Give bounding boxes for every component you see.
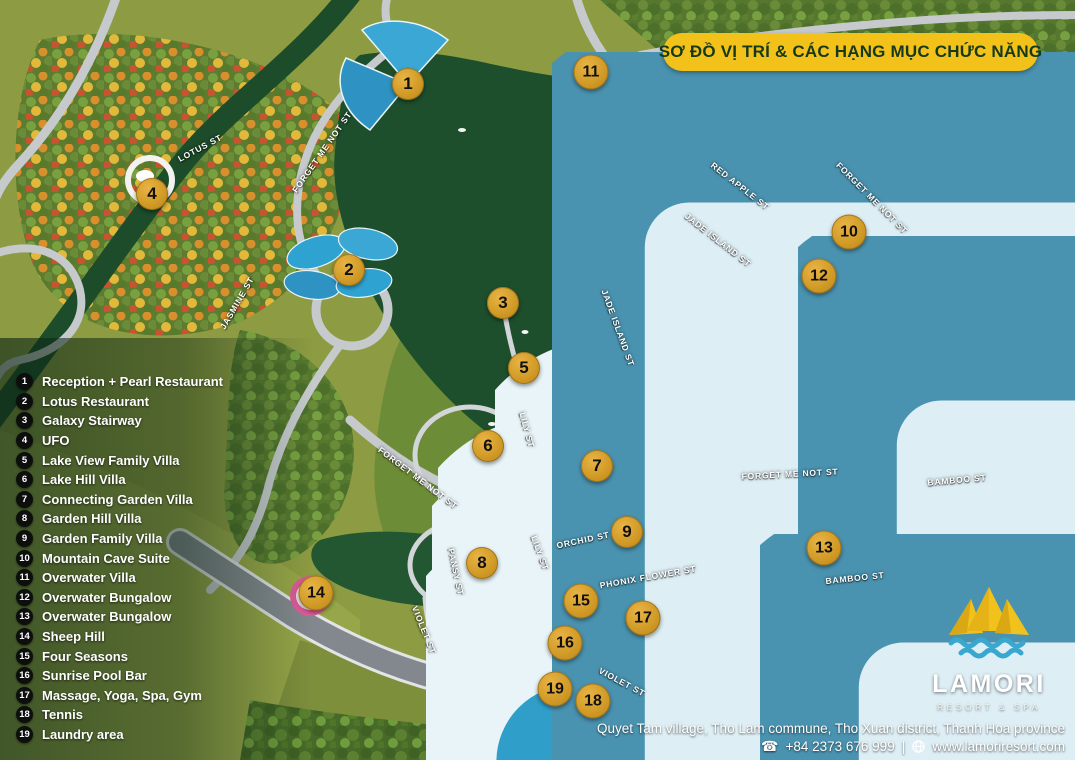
legend-item-label: Garden Hill Villa	[42, 511, 141, 526]
legend-item-15: 15Four Seasons	[16, 646, 223, 666]
resort-logo: LAMORI RESORT & SPA	[919, 583, 1059, 712]
map-marker-7[interactable]: 7	[581, 450, 613, 482]
legend-item-17: 17Massage, Yoga, Spa, Gym	[16, 686, 223, 706]
legend-item-11: 11Overwater Villa	[16, 568, 223, 588]
legend-item-1: 1Reception + Pearl Restaurant	[16, 372, 223, 392]
logo-tagline: RESORT & SPA	[919, 702, 1059, 712]
globe-icon	[912, 740, 925, 753]
legend-item-label: Sunrise Pool Bar	[42, 668, 147, 683]
footer: Quyet Tam village, Tho Lam commune, Tho …	[597, 721, 1065, 755]
map-marker-1[interactable]: 1	[392, 68, 424, 100]
legend-item-7: 7Connecting Garden Villa	[16, 490, 223, 510]
legend-item-label: Massage, Yoga, Spa, Gym	[42, 688, 202, 703]
legend-item-9: 9Garden Family Villa	[16, 529, 223, 549]
map-marker-10[interactable]: 10	[832, 215, 867, 250]
legend-item-number: 16	[16, 667, 33, 684]
legend-item-number: 4	[16, 432, 33, 449]
map-marker-17[interactable]: 17	[626, 601, 661, 636]
legend-item-2: 2Lotus Restaurant	[16, 392, 223, 412]
map-marker-14[interactable]: 14	[299, 576, 334, 611]
footer-separator: |	[902, 739, 906, 754]
legend-item-label: Lake Hill Villa	[42, 472, 126, 487]
legend-item-label: Galaxy Stairway	[42, 413, 142, 428]
legend-item-number: 14	[16, 628, 33, 645]
map-marker-3[interactable]: 3	[487, 287, 519, 319]
map-marker-19[interactable]: 19	[538, 672, 573, 707]
resort-map-page: 1Reception + Pearl Restaurant2Lotus Rest…	[0, 0, 1075, 760]
legend-item-number: 13	[16, 608, 33, 625]
legend-item-label: Overwater Villa	[42, 570, 136, 585]
legend-item-label: Overwater Bungalow	[42, 590, 171, 605]
legend-item-number: 7	[16, 491, 33, 508]
map-marker-2[interactable]: 2	[333, 254, 365, 286]
legend-item-16: 16Sunrise Pool Bar	[16, 666, 223, 686]
phone-number[interactable]: +84 2373 676 999	[785, 739, 894, 754]
map-marker-15[interactable]: 15	[564, 584, 599, 619]
legend-item-13: 13Overwater Bungalow	[16, 607, 223, 627]
legend-item-number: 18	[16, 706, 33, 723]
title-banner: SƠ ĐỒ VỊ TRÍ & CÁC HẠNG MỤC CHỨC NĂNG	[663, 33, 1038, 71]
legend-item-label: Mountain Cave Suite	[42, 551, 170, 566]
map-marker-11[interactable]: 11	[574, 55, 609, 90]
legend-item-number: 12	[16, 589, 33, 606]
map-marker-4[interactable]: 4	[136, 178, 168, 210]
legend-item-number: 19	[16, 726, 33, 743]
legend-item-18: 18Tennis	[16, 705, 223, 725]
legend-item-number: 6	[16, 471, 33, 488]
legend-item-label: Reception + Pearl Restaurant	[42, 374, 223, 389]
legend-item-8: 8Garden Hill Villa	[16, 509, 223, 529]
address-text: Quyet Tam village, Tho Lam commune, Tho …	[597, 721, 1065, 736]
page-title: SƠ ĐỒ VỊ TRÍ & CÁC HẠNG MỤC CHỨC NĂNG	[659, 42, 1043, 62]
map-marker-13[interactable]: 13	[807, 531, 842, 566]
map-marker-9[interactable]: 9	[611, 516, 643, 548]
legend-item-label: UFO	[42, 433, 69, 448]
legend-item-label: Garden Family Villa	[42, 531, 162, 546]
legend-item-label: Lotus Restaurant	[42, 394, 149, 409]
legend-item-number: 2	[16, 393, 33, 410]
crown-waves-icon	[937, 583, 1041, 663]
legend-item-14: 14Sheep Hill	[16, 627, 223, 647]
legend-item-number: 17	[16, 687, 33, 704]
legend-item-19: 19Laundry area	[16, 725, 223, 745]
logo-name: LAMORI	[919, 670, 1059, 699]
map-marker-12[interactable]: 12	[802, 259, 837, 294]
legend-item-number: 10	[16, 550, 33, 567]
phone-icon: ☎	[761, 738, 778, 755]
legend-item-label: Connecting Garden Villa	[42, 492, 193, 507]
map-marker-8[interactable]: 8	[466, 547, 498, 579]
legend-item-label: Four Seasons	[42, 649, 128, 664]
map-marker-6[interactable]: 6	[472, 430, 504, 462]
legend-item-4: 4UFO	[16, 431, 223, 451]
legend-item-label: Sheep Hill	[42, 629, 105, 644]
map-marker-5[interactable]: 5	[508, 352, 540, 384]
legend-item-number: 9	[16, 530, 33, 547]
legend-item-number: 3	[16, 412, 33, 429]
legend-item-number: 8	[16, 510, 33, 527]
legend-item-6: 6Lake Hill Villa	[16, 470, 223, 490]
legend-item-12: 12Overwater Bungalow	[16, 588, 223, 608]
legend-item-number: 11	[16, 569, 33, 586]
legend-item-label: Tennis	[42, 707, 83, 722]
website-url[interactable]: www.lamoriresort.com	[932, 739, 1065, 754]
legend-item-3: 3Galaxy Stairway	[16, 411, 223, 431]
legend: 1Reception + Pearl Restaurant2Lotus Rest…	[16, 372, 223, 744]
legend-item-number: 1	[16, 373, 33, 390]
map-marker-16[interactable]: 16	[548, 626, 583, 661]
legend-item-10: 10Mountain Cave Suite	[16, 548, 223, 568]
legend-item-label: Overwater Bungalow	[42, 609, 171, 624]
map-marker-18[interactable]: 18	[576, 684, 611, 719]
legend-item-5: 5Lake View Family Villa	[16, 450, 223, 470]
legend-item-label: Lake View Family Villa	[42, 453, 180, 468]
legend-item-number: 5	[16, 452, 33, 469]
legend-item-number: 15	[16, 648, 33, 665]
legend-item-label: Laundry area	[42, 727, 124, 742]
